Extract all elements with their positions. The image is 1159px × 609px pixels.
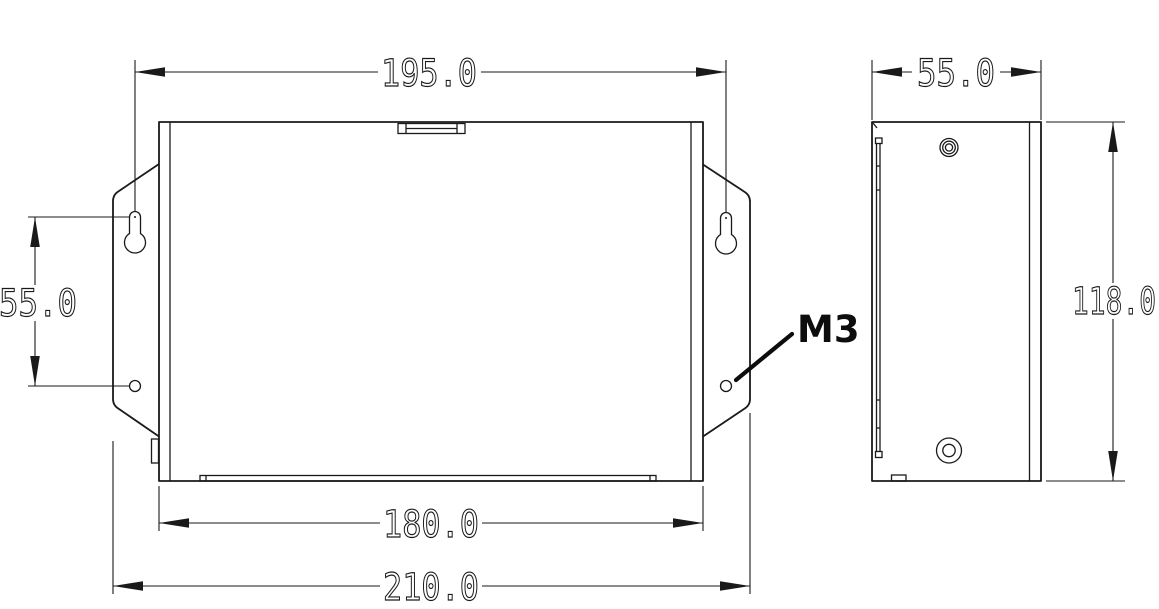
dim-text-180: 180.0 — [383, 503, 479, 546]
dim-text-210: 210.0 — [383, 566, 479, 609]
arrowhead-down — [30, 356, 40, 386]
top-slot — [398, 124, 465, 134]
dim-text-195: 195.0 — [381, 52, 477, 95]
side-top-chamfer — [873, 123, 877, 128]
arrowhead-left — [113, 581, 143, 591]
arrowhead-up — [30, 217, 40, 247]
callout-text-m3: M3 — [797, 308, 860, 351]
technical-drawing-canvas: 195.0 55.0 180.0 210.0 5 — [0, 0, 1159, 609]
strip-cap-top — [876, 138, 883, 144]
keyhole-center-mark-right — [725, 217, 727, 219]
dim-mount-hole-span: 195.0 — [135, 52, 726, 212]
arrowhead-right — [1011, 67, 1041, 77]
dim-hole-vertical-spacing: 55.0 — [0, 217, 129, 386]
arrowhead-left — [135, 67, 165, 77]
arrowhead-left — [159, 518, 189, 528]
dim-height: 118.0 — [1046, 122, 1156, 481]
arrowhead-right — [720, 581, 750, 591]
side-screw-bottom — [937, 438, 962, 463]
side-front-flange-strip — [876, 138, 883, 458]
leader-line — [736, 334, 792, 380]
arrowhead-left — [872, 67, 902, 77]
front-body-outline — [159, 122, 703, 481]
side-screw-top-inner — [945, 144, 952, 151]
keyhole-center-mark-left — [134, 216, 136, 218]
arrowhead-right — [696, 67, 726, 77]
dim-text-55-left: 55.0 — [0, 282, 77, 325]
thread-callout-m3: M3 — [736, 308, 860, 380]
screw-hole-right — [721, 381, 732, 392]
side-screw-top-mid — [943, 141, 956, 154]
left-edge-clip — [152, 439, 159, 463]
front-view — [113, 122, 750, 481]
arrowhead-up — [1108, 122, 1118, 152]
dim-depth: 55.0 — [872, 52, 1041, 120]
mounting-tab-left — [113, 164, 159, 437]
side-screw-bottom-inner — [943, 444, 955, 456]
dim-body-width: 180.0 — [159, 486, 703, 546]
dim-text-55-side: 55.0 — [917, 52, 995, 95]
strip-cap-bottom — [876, 452, 883, 458]
arrowhead-down — [1108, 451, 1118, 481]
side-screw-bottom-outer — [937, 438, 962, 463]
arrowhead-right — [673, 518, 703, 528]
screw-hole-left — [130, 381, 141, 392]
side-body-outline — [872, 122, 1041, 481]
side-screw-top — [940, 139, 958, 157]
dim-text-118: 118.0 — [1072, 280, 1156, 323]
drawing-sheet: 195.0 55.0 180.0 210.0 5 — [0, 0, 1159, 609]
side-view — [872, 122, 1041, 481]
